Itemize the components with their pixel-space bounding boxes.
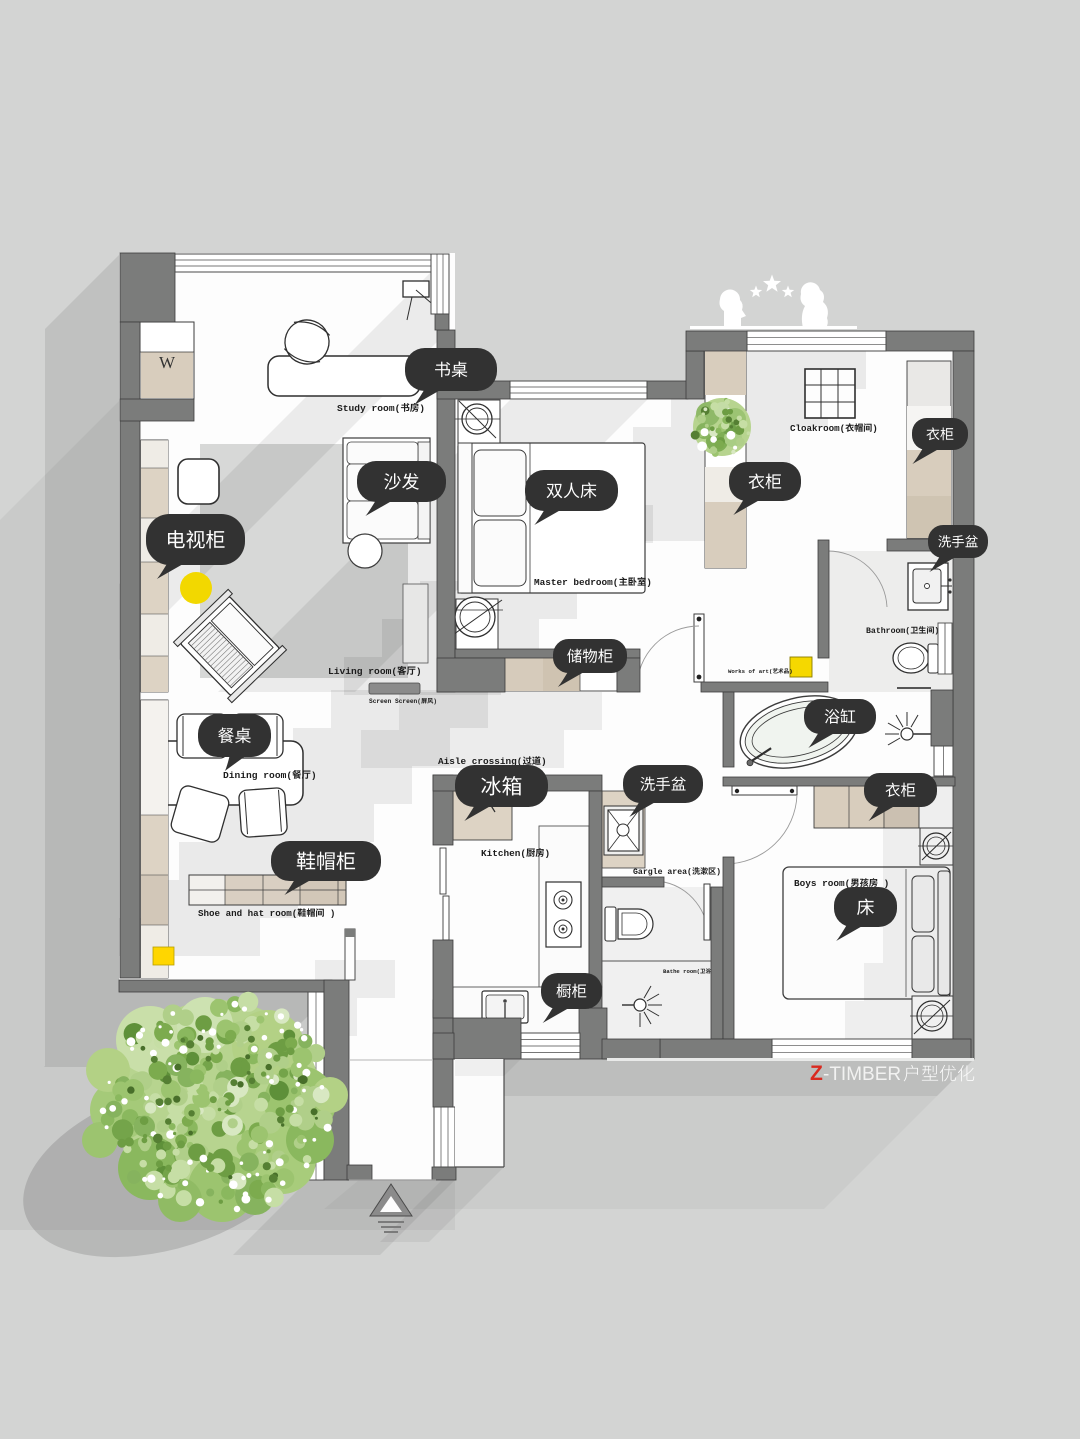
- svg-text:Master bedroom(: Master bedroom(: [534, 577, 618, 588]
- svg-text:): ): [716, 867, 721, 877]
- svg-text:Bathroom(: Bathroom(: [866, 626, 910, 636]
- svg-text:Screen Screen(: Screen Screen(: [369, 698, 421, 705]
- svg-text:): ): [541, 756, 547, 767]
- svg-text:): ): [311, 770, 317, 781]
- svg-text:): ): [789, 668, 792, 675]
- svg-text:-TIMBER: -TIMBER: [823, 1064, 901, 1085]
- svg-text:): ): [646, 577, 652, 588]
- svg-text:): ): [545, 848, 551, 859]
- svg-text:Kitchen(: Kitchen(: [481, 848, 526, 859]
- svg-text:Gargle area(: Gargle area(: [633, 867, 692, 877]
- svg-text:Works of art(: Works of art(: [728, 668, 772, 675]
- svg-text:): ): [416, 666, 422, 677]
- svg-text:Boys room(: Boys room(: [794, 878, 850, 889]
- svg-text:Study room(: Study room(: [337, 403, 400, 414]
- svg-text:): ): [419, 403, 425, 414]
- svg-text:Living room(: Living room(: [328, 666, 397, 677]
- svg-text:): ): [872, 423, 878, 434]
- svg-text:Dining room(: Dining room(: [223, 770, 292, 781]
- svg-text:Z: Z: [810, 1062, 823, 1085]
- svg-text:Shoe and hat room(: Shoe and hat room(: [198, 908, 297, 919]
- svg-text:): ): [324, 908, 335, 919]
- svg-text:Cloakroom(: Cloakroom(: [790, 423, 845, 434]
- svg-text:Bathe room(: Bathe room(: [663, 968, 700, 975]
- svg-text:W: W: [159, 353, 176, 372]
- svg-text:): ): [433, 698, 437, 705]
